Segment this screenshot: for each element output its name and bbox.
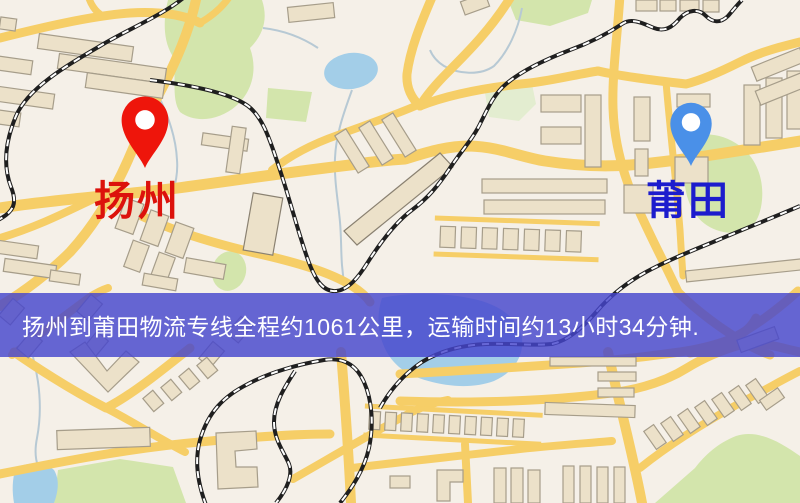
logistics-route-map-image: 扬州 莆田 扬州到莆田物流专线全程约1061公里，运输时间约13小时34分钟. bbox=[0, 0, 800, 503]
map-canvas: 扬州 莆田 bbox=[0, 0, 800, 503]
destination-pin-hole bbox=[682, 113, 700, 131]
origin-label: 扬州 bbox=[94, 178, 180, 224]
destination-label: 莆田 bbox=[646, 179, 730, 223]
route-info-text: 扬州到莆田物流专线全程约1061公里，运输时间约13小时34分钟. bbox=[22, 308, 699, 342]
origin-pin-hole bbox=[135, 110, 155, 129]
park-small-center bbox=[266, 88, 312, 122]
route-info-banner: 扬州到莆田物流专线全程约1061公里，运输时间约13小时34分钟. bbox=[0, 293, 800, 357]
